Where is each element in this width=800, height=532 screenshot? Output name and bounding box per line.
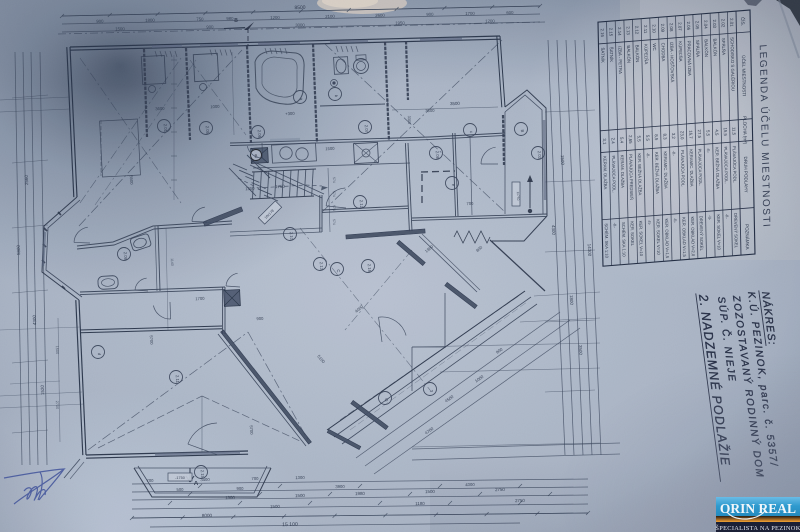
svg-text:ORIN REAL: ORIN REAL — [720, 501, 796, 516]
svg-text:ŠPECIALISTA NA PEZINOK: ŠPECIALISTA NA PEZINOK — [715, 524, 800, 532]
